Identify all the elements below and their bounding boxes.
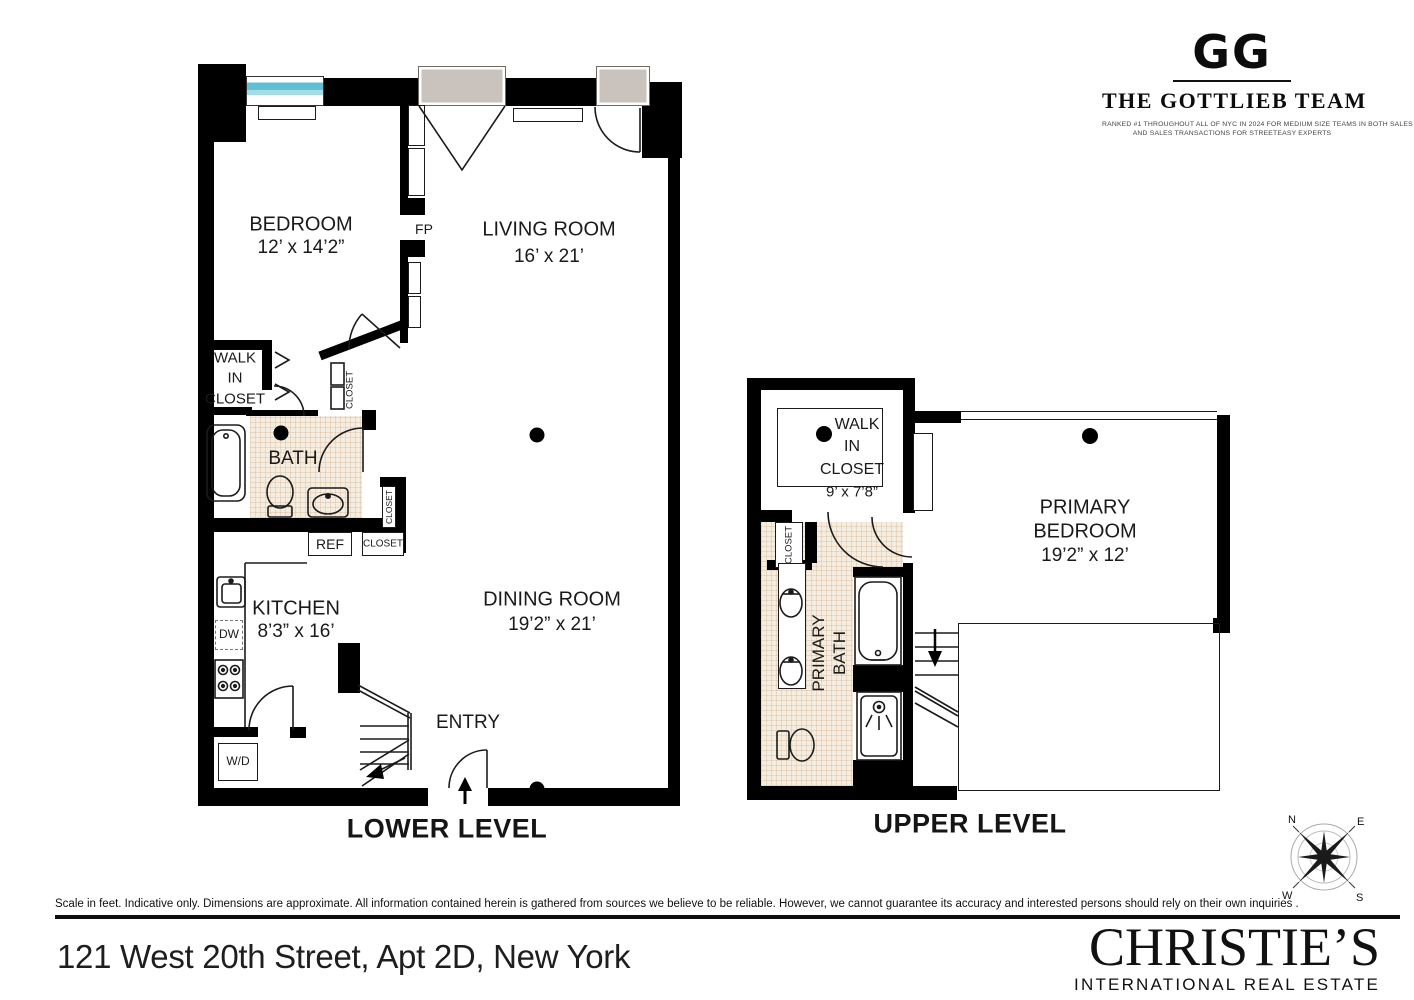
lower-plan-overlay bbox=[198, 58, 682, 810]
stove-icon bbox=[215, 660, 243, 698]
living-room-label: LIVING ROOM bbox=[482, 219, 615, 242]
brokerage-sub: INTERNATIONAL REAL ESTATE bbox=[1074, 975, 1380, 995]
entry-arrow-icon bbox=[458, 777, 472, 804]
kitchen-dims: 8’3” x 16’ bbox=[257, 621, 334, 643]
dining-room-dims: 19’2” x 21’ bbox=[508, 614, 596, 636]
bedroom-dims: 12’ x 14’2” bbox=[258, 237, 345, 259]
upper-plan-overlay bbox=[745, 375, 1235, 812]
kitchen-label: KITCHEN bbox=[252, 598, 340, 621]
counter-line bbox=[245, 563, 307, 727]
dining-room-label: DINING ROOM bbox=[483, 589, 621, 612]
brokerage-name: CHRISTIE’S bbox=[1074, 920, 1380, 974]
walk-in-closet-label-line1: WALK bbox=[835, 416, 880, 434]
bathtub-icon bbox=[855, 577, 901, 665]
walk-in-closet-label-line3: CLOSET bbox=[205, 390, 265, 407]
terrace-door-swing-icon bbox=[595, 107, 640, 152]
washer-dryer-label: W/D bbox=[226, 755, 249, 769]
column-icon bbox=[816, 426, 832, 442]
team-tagline-line1: RANKED #1 THROUGHOUT ALL OF NYC IN 2024 … bbox=[1102, 121, 1362, 128]
floor-plan-lower: BEDROOM 12’ x 14’2” LIVING ROOM 16’ x 21… bbox=[198, 58, 682, 810]
column-icon bbox=[274, 426, 289, 441]
bathtub-icon bbox=[207, 425, 245, 501]
compass-rose: N E W S bbox=[1272, 810, 1376, 906]
bath-door-swing-icon bbox=[319, 428, 363, 472]
toilet-icon bbox=[267, 476, 293, 517]
shower-icon bbox=[857, 692, 901, 760]
bedroom-door-swing-icon bbox=[872, 517, 912, 557]
primary-bedroom-label-line2: BEDROOM bbox=[1033, 521, 1136, 544]
toilet-icon bbox=[777, 729, 814, 761]
primary-bedroom-dims: 19’2” x 12’ bbox=[1041, 545, 1129, 567]
french-door-swing-icon bbox=[419, 106, 505, 170]
bifold-door-icon bbox=[275, 352, 289, 400]
closet-label: CLOSET bbox=[784, 526, 795, 564]
living-room-dims: 16’ x 21’ bbox=[514, 246, 584, 268]
stairs-icon bbox=[358, 685, 411, 786]
closet-label-hall: CLOSET bbox=[384, 490, 394, 524]
team-tagline-line2: AND SALES TRANSACTIONS FOR STREETEASY EX… bbox=[1102, 130, 1362, 137]
walk-in-closet-label-line2: IN bbox=[228, 369, 243, 386]
kitchen-sink-icon bbox=[217, 577, 245, 607]
primary-bath-label-line1: PRIMARY bbox=[808, 614, 829, 691]
team-monogram: GG bbox=[1102, 28, 1362, 76]
bath-label: BATH bbox=[268, 448, 317, 470]
primary-bath-label-line2: BATH bbox=[829, 614, 850, 691]
walk-in-closet-dims: 9’ x 7’8” bbox=[826, 483, 878, 500]
walk-in-closet-label-line3: CLOSET bbox=[820, 461, 884, 479]
bedroom-label: BEDROOM bbox=[249, 214, 352, 237]
primary-bath-label: PRIMARY BATH bbox=[808, 614, 851, 691]
walk-in-closet-door-swing-icon bbox=[828, 512, 883, 567]
refrigerator-label: REF bbox=[316, 536, 344, 552]
bath-sink-icon bbox=[780, 589, 802, 617]
dishwasher-label: DW bbox=[219, 628, 239, 642]
closet-shelf-icon bbox=[331, 363, 344, 409]
column-icon bbox=[1082, 428, 1098, 444]
entry-label: ENTRY bbox=[436, 712, 500, 734]
floor-plan-upper: WALK IN CLOSET 9’ x 7’8” CLOSET PRIMARY … bbox=[745, 375, 1235, 812]
logo-divider bbox=[1173, 80, 1291, 82]
property-address: 121 West 20th Street, Apt 2D, New York bbox=[57, 938, 630, 976]
floor-plan-page: GG THE GOTTLIEB TEAM RANKED #1 THROUGHOU… bbox=[0, 0, 1414, 1000]
team-name: THE GOTTLIEB TEAM bbox=[1102, 88, 1362, 114]
column-icon bbox=[530, 428, 545, 443]
walk-in-closet-door-swing-icon bbox=[274, 386, 304, 416]
bath-sink-icon bbox=[308, 488, 348, 517]
column-icon bbox=[530, 782, 545, 797]
walk-in-closet-label-line2: IN bbox=[844, 438, 860, 456]
entry-door-swing-icon bbox=[449, 750, 487, 788]
closet-label-entry: CLOSET bbox=[363, 538, 403, 550]
kitchen-door-swing-icon bbox=[249, 686, 293, 730]
stairs-icon bbox=[915, 633, 958, 727]
lower-level-title: LOWER LEVEL bbox=[347, 814, 548, 845]
brokerage-logo: CHRISTIE’S INTERNATIONAL REAL ESTATE bbox=[1074, 920, 1380, 995]
team-logo: GG THE GOTTLIEB TEAM RANKED #1 THROUGHOU… bbox=[1102, 28, 1362, 137]
closet-label-angled: CLOSET bbox=[345, 371, 356, 409]
walk-in-closet-label-line1: WALK bbox=[214, 349, 256, 366]
disclaimer-text: Scale in feet. Indicative only. Dimensio… bbox=[55, 898, 1400, 910]
compass-north-label: N bbox=[1288, 814, 1296, 826]
fireplace-label: FP bbox=[415, 221, 433, 237]
upper-level-title: UPPER LEVEL bbox=[873, 809, 1066, 840]
bath-sink-icon bbox=[780, 657, 802, 685]
primary-bedroom-label-line1: PRIMARY bbox=[1040, 497, 1131, 520]
compass-east-label: E bbox=[1357, 816, 1364, 828]
compass-star bbox=[1298, 831, 1350, 883]
